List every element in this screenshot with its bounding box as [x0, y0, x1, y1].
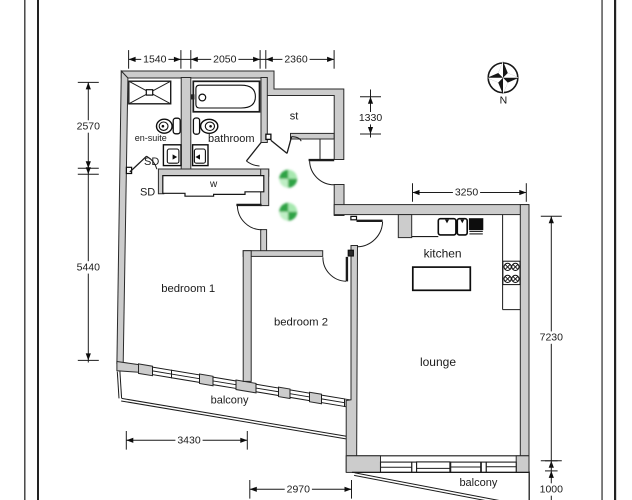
svg-text:st: st — [290, 110, 299, 122]
svg-text:bedroom 1: bedroom 1 — [161, 283, 215, 295]
svg-text:bathroom: bathroom — [208, 133, 254, 145]
svg-text:2570: 2570 — [77, 121, 101, 133]
svg-text:7230: 7230 — [540, 332, 564, 344]
svg-text:w: w — [209, 179, 218, 190]
svg-text:2360: 2360 — [284, 53, 308, 65]
svg-text:SD: SD — [144, 156, 159, 168]
svg-text:balcony: balcony — [459, 477, 497, 489]
svg-text:balcony: balcony — [211, 395, 249, 407]
svg-text:SD: SD — [140, 186, 155, 198]
svg-text:lounge: lounge — [420, 355, 456, 369]
svg-text:5440: 5440 — [77, 261, 101, 273]
svg-text:1540: 1540 — [143, 53, 167, 65]
svg-text:3430: 3430 — [177, 434, 201, 446]
svg-text:2050: 2050 — [213, 53, 237, 65]
svg-text:N: N — [500, 94, 508, 106]
svg-text:1000: 1000 — [540, 484, 564, 496]
svg-text:kitchen: kitchen — [424, 247, 462, 261]
svg-text:1330: 1330 — [359, 112, 383, 124]
svg-text:3250: 3250 — [455, 187, 479, 199]
svg-text:2970: 2970 — [287, 483, 311, 495]
svg-text:en-suite: en-suite — [135, 133, 167, 143]
svg-text:bedroom 2: bedroom 2 — [274, 317, 328, 329]
